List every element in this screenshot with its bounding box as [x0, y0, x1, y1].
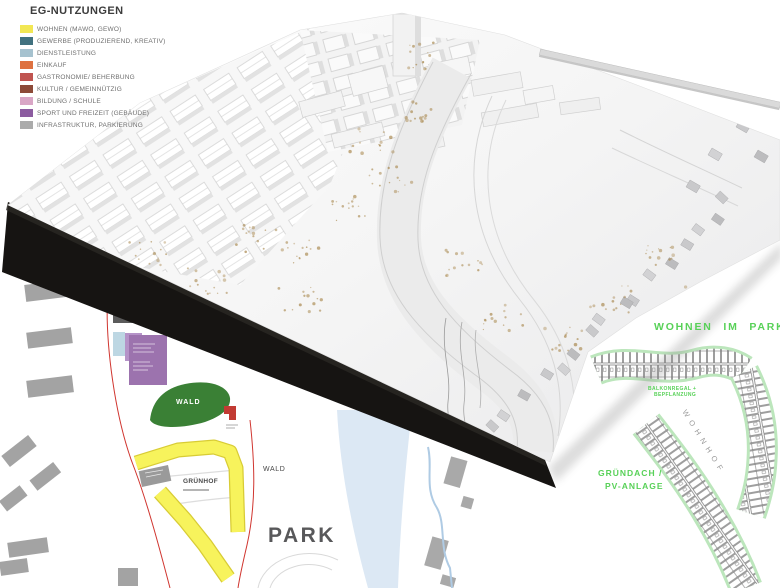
- legend-item: WOHNEN (MAWO, GEWO): [20, 23, 166, 35]
- legend: EG-NUTZUNGEN WOHNEN (MAWO, GEWO)GEWERBE …: [20, 5, 166, 131]
- legend-item-label: WOHNEN (MAWO, GEWO): [37, 26, 121, 33]
- gruenhof-subtitle-mark: [183, 489, 209, 491]
- legend-swatch: [20, 109, 33, 117]
- legend-item: GASTRONOMIE/ BEHERBUNG: [20, 71, 166, 83]
- legend-item-label: SPORT UND FREIZEIT (GEBÄUDE): [37, 110, 149, 117]
- wald-small-label: WALD: [263, 466, 285, 473]
- legend-item: EINKAUF: [20, 59, 166, 71]
- legend-item: DIENSTLEISTUNG: [20, 47, 166, 59]
- balkon-label-line2: BEPFLANZUNG: [654, 392, 696, 398]
- legend-item: KULTUR / GEMEINNÜTZIG: [20, 83, 166, 95]
- legend-swatch: [20, 37, 33, 45]
- legend-swatch: [20, 73, 33, 81]
- wald-area-label: WALD: [176, 399, 201, 406]
- legend-swatch: [20, 25, 33, 33]
- gruendach-label-line1: GRÜNDACH /: [598, 468, 662, 478]
- legend-swatch: [20, 85, 33, 93]
- legend-item: INFRASTRUKTUR, PARKIERUNG: [20, 119, 166, 131]
- legend-swatch: [20, 49, 33, 57]
- legend-item-label: GASTRONOMIE/ BEHERBUNG: [37, 74, 135, 81]
- legend-rows: WOHNEN (MAWO, GEWO)GEWERBE (PRODUZIEREND…: [20, 23, 166, 131]
- legend-swatch: [20, 61, 33, 69]
- legend-item-label: BILDUNG / SCHULE: [37, 98, 101, 105]
- wohnen-im-park-label: WOHNEN IM PARK: [654, 321, 780, 333]
- legend-title: EG-NUTZUNGEN: [30, 5, 166, 17]
- legend-item: GEWERBE (PRODUZIEREND, KREATIV): [20, 35, 166, 47]
- legend-item: SPORT UND FREIZEIT (GEBÄUDE): [20, 107, 166, 119]
- legend-item: BILDUNG / SCHULE: [20, 95, 166, 107]
- gruenhof-label: GRÜNHOF: [183, 478, 218, 485]
- legend-swatch: [20, 97, 33, 105]
- park-label: PARK: [268, 524, 336, 548]
- legend-item-label: GEWERBE (PRODUZIEREND, KREATIV): [37, 38, 166, 45]
- legend-item-label: INFRASTRUKTUR, PARKIERUNG: [37, 122, 143, 129]
- gruendach-label-line2: PV-ANLAGE: [605, 481, 664, 491]
- legend-item-label: KULTUR / GEMEINNÜTZIG: [37, 86, 122, 93]
- legend-item-label: DIENSTLEISTUNG: [37, 50, 96, 57]
- legend-item-label: EINKAUF: [37, 62, 67, 69]
- legend-swatch: [20, 121, 33, 129]
- poster-canvas: EG-NUTZUNGEN WOHNEN (MAWO, GEWO)GEWERBE …: [0, 0, 780, 588]
